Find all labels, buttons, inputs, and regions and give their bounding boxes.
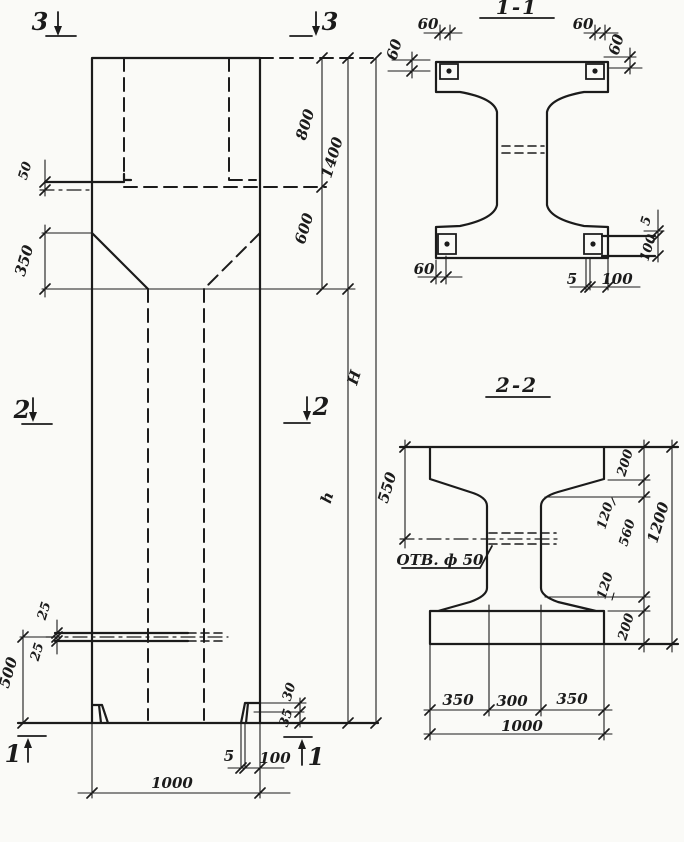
section-1-1-view: 1-1 60 60 60 60 60 5 100 5 100	[383, 0, 664, 292]
mark-arrow-stems	[28, 12, 316, 765]
dim-60-right: 60	[605, 31, 628, 57]
mark-2-left: 2	[13, 395, 31, 424]
dim-taper-350: 350	[11, 242, 38, 278]
dim-60-bottom-left: 60	[414, 260, 435, 278]
anchor-dot	[444, 241, 449, 246]
section-1-1-dim-lines	[388, 25, 664, 290]
dim-60-top-left: 60	[418, 15, 439, 33]
dim-hole-25b: 25	[28, 641, 48, 664]
dim-60-top-right: 60	[573, 15, 594, 33]
dim-300-mid: 300	[496, 692, 528, 710]
dim-ledge-50: 50	[16, 160, 36, 182]
dim-1000: 1000	[501, 717, 543, 735]
mark-1-left: 1	[5, 739, 22, 768]
dim-200-top: 200	[614, 448, 637, 479]
section-2-2-dim-labels: 550 ОТВ. ф 50 200 120 560 120 200 1200 3…	[374, 448, 673, 735]
dim-height-500: 500	[0, 654, 22, 690]
dim-5-bottom: 5	[567, 270, 577, 288]
section-1-1-dim-labels: 60 60 60 60 60 5 100 5 100	[383, 15, 660, 288]
dim-total-H: Н	[343, 367, 365, 388]
mark-3-left: 3	[32, 7, 49, 36]
dim-width-1000: 1000	[151, 774, 193, 792]
dim-plate-5: 5	[224, 747, 234, 765]
dim-shaft-h: h	[317, 490, 337, 506]
mark-3-right: 3	[322, 7, 339, 36]
dim-lip-30: 30	[280, 681, 300, 703]
elevation-view: 3 3 2 2 1 1 50 350 25 25 500 1000 5 100 …	[0, 7, 381, 798]
section-2-2-title: 2-2	[495, 373, 538, 397]
anchor-dot	[446, 68, 451, 73]
dim-hole-25a: 25	[35, 600, 55, 623]
dim-200-bottom: 200	[615, 612, 638, 643]
section-cut-marks: 3 3 2 2 1 1	[5, 7, 339, 771]
anchor-dot	[592, 68, 597, 73]
section-2-2-view: 2-2 550 ОТВ. ф 50 200 120 560 120 200 12…	[374, 373, 678, 740]
dim-560: 560	[617, 518, 639, 548]
dim-seg-600: 600	[291, 210, 318, 246]
dim-seg-800: 800	[292, 106, 319, 142]
section-1-1-hole-hidden	[502, 146, 544, 153]
dim-350-left: 350	[442, 691, 474, 709]
dim-550: 550	[374, 469, 401, 505]
dim-5-side: 5	[638, 214, 655, 227]
anchor-dot	[590, 241, 595, 246]
section-1-1-outline	[436, 62, 655, 258]
dim-350-right: 350	[556, 690, 588, 708]
dim-100-bottom: 100	[601, 270, 633, 288]
elevation-dim-labels: 50 350 25 25 500 1000 5 100 30 35 800 60…	[0, 106, 365, 792]
dim-60-left: 60	[383, 36, 406, 62]
centerlines	[40, 190, 228, 637]
dim-120-top: 120	[595, 501, 617, 531]
technical-drawing: 3 3 2 2 1 1 50 350 25 25 500 1000 5 100 …	[0, 0, 684, 842]
dim-1200: 1200	[644, 499, 674, 545]
section-2-2-outline	[400, 447, 678, 644]
dim-lip-35: 35	[277, 707, 297, 729]
mark-2-right: 2	[312, 392, 330, 421]
mark-1-right: 1	[308, 742, 325, 771]
dim-plate-100: 100	[259, 749, 291, 767]
section-1-1-title: 1-1	[496, 0, 538, 19]
hole-label: ОТВ. ф 50	[397, 551, 485, 569]
